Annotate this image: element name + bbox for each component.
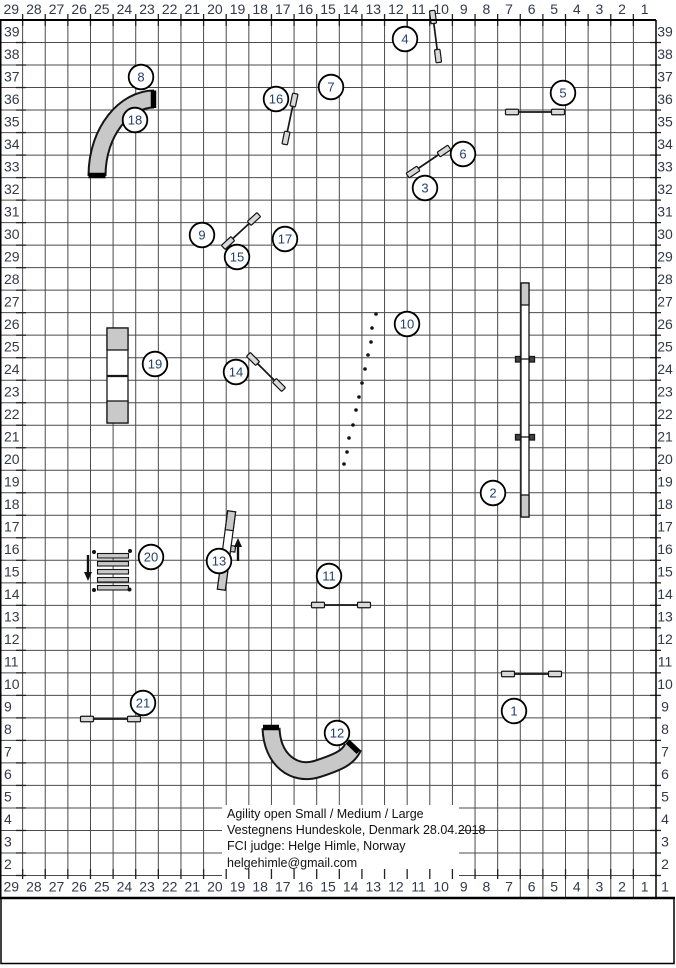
weave-pole [369, 340, 373, 344]
col-label-bottom: 21 [184, 879, 200, 895]
row-label-left: 14 [4, 586, 20, 602]
col-label-top: 5 [550, 1, 558, 17]
row-label-right: 23 [657, 383, 673, 399]
row-label-right: 2 [661, 856, 669, 872]
row-label-left: 34 [4, 136, 20, 152]
col-label-bottom: 7 [505, 879, 513, 895]
row-label-right: 9 [661, 699, 669, 715]
col-label-bottom: 15 [320, 879, 336, 895]
obstacle-number-17: 17 [273, 227, 298, 252]
row-label-right: 33 [657, 158, 673, 174]
jump-wing [128, 716, 141, 722]
row-label-left: 22 [4, 406, 20, 422]
col-label-top: 8 [482, 1, 490, 17]
row-label-right: 11 [658, 654, 673, 670]
number-text: 14 [229, 365, 243, 380]
row-label-left: 33 [4, 158, 20, 174]
course-info-venue-line: Vestegnens Hundeskole, Denmark 28.04.201… [227, 822, 459, 838]
obstacle-number-12: 12 [325, 721, 350, 746]
row-label-left: 16 [4, 541, 20, 557]
long-jump [92, 549, 132, 592]
number-text: 16 [269, 92, 283, 107]
dog-walk-plank [521, 283, 529, 517]
row-label-right: 4 [661, 811, 669, 827]
row-label-right: 22 [657, 406, 673, 422]
obstacle-number-20: 20 [139, 545, 164, 570]
col-label-top: 11 [411, 1, 426, 17]
weave-pole [363, 367, 367, 371]
number-text: 1 [510, 704, 517, 719]
row-label-left: 11 [4, 654, 19, 670]
dog-walk-contact-bottom [521, 495, 529, 517]
col-label-bottom: 11 [411, 879, 426, 895]
row-label-left: 6 [4, 766, 12, 782]
jump-wing [429, 10, 436, 24]
row-label-left: 28 [4, 271, 20, 287]
row-label-left: 27 [4, 293, 20, 309]
weave-pole [370, 326, 374, 330]
long-jump-slat [98, 578, 129, 583]
col-label-bottom: 20 [207, 879, 223, 895]
col-label-bottom: 9 [460, 879, 468, 895]
row-label-right: 27 [657, 293, 673, 309]
number-text: 13 [212, 554, 226, 569]
obstacle-number-9: 9 [190, 223, 215, 248]
row-label-left: 18 [4, 496, 20, 512]
jump-wing [434, 49, 441, 63]
col-label-top: 2 [618, 1, 626, 17]
col-label-bottom: 23 [139, 879, 155, 895]
weave-pole [351, 423, 355, 427]
obstacle-number-8: 8 [129, 65, 154, 90]
col-label-top: 7 [505, 1, 513, 17]
col-label-bottom: 13 [365, 879, 381, 895]
col-label-bottom: 28 [26, 879, 42, 895]
row-label-right: 35 [657, 113, 673, 129]
row-label-right: 13 [657, 609, 673, 625]
col-label-top: 6 [528, 1, 536, 17]
jump-wing [506, 109, 519, 115]
weave-pole [354, 408, 358, 412]
jump-wing [549, 671, 562, 677]
number-text: 5 [559, 86, 566, 101]
row-label-right: 20 [657, 451, 673, 467]
number-text: 12 [330, 726, 344, 741]
col-label-top: 15 [320, 1, 336, 17]
col-label-top: 17 [275, 1, 291, 17]
long-jump-corner-pole [128, 588, 132, 592]
row-label-left: 12 [4, 631, 20, 647]
col-label-top: 3 [596, 1, 604, 17]
weave-pole [374, 312, 378, 316]
row-label-right: 21 [657, 428, 673, 444]
col-label-bottom: 10 [433, 879, 449, 895]
col-label-bottom: 3 [596, 879, 604, 895]
dog-walk-tab [516, 357, 521, 363]
number-text: 11 [322, 569, 336, 584]
agility-course-plan: 2928272625242322212019181716151413121110… [0, 0, 676, 968]
col-label-bottom: 27 [49, 879, 65, 895]
row-label-left: 19 [4, 474, 20, 490]
weave-pole [342, 462, 346, 466]
col-label-top: 27 [49, 1, 65, 17]
row-label-left: 23 [4, 383, 20, 399]
col-label-top: 9 [460, 1, 468, 17]
col-label-bottom: 4 [573, 879, 581, 895]
a-frame [107, 328, 128, 423]
number-text: 7 [327, 80, 334, 95]
col-label-bottom: 12 [388, 879, 404, 895]
row-label-right: 31 [657, 203, 673, 219]
col-label-top: 18 [252, 1, 268, 17]
col-label-bottom: 19 [230, 879, 246, 895]
col-label-bottom: 22 [162, 879, 178, 895]
jump-wing [502, 671, 515, 677]
col-label-top: 26 [71, 1, 87, 17]
row-label-right: 38 [657, 46, 673, 62]
col-label-bottom: 1 [641, 879, 649, 895]
obstacle-number-3: 3 [413, 176, 438, 201]
number-text: 18 [128, 113, 142, 128]
row-label-right: 24 [657, 361, 673, 377]
row-label-left: 24 [4, 361, 20, 377]
jump-wing [358, 602, 371, 608]
course-info-class-line: Agility open Small / Medium / Large [227, 806, 459, 822]
seesaw-contact-top [225, 511, 235, 531]
col-label-top: 23 [139, 1, 155, 17]
a-frame-contact-top [107, 328, 128, 350]
col-label-bottom: 16 [298, 879, 314, 895]
row-label-right: 36 [657, 91, 673, 107]
obstacle-number-10: 10 [395, 312, 420, 337]
weave-pole [357, 395, 361, 399]
obstacle-number-11: 11 [317, 564, 342, 589]
dog-walk-tab [530, 357, 535, 363]
row-label-right: 8 [661, 721, 669, 737]
obstacle-number-15: 15 [225, 245, 250, 270]
row-label-left: 31 [4, 203, 20, 219]
obstacle-number-14: 14 [224, 360, 249, 385]
weave-pole [366, 353, 370, 357]
row-label-left: 39 [4, 23, 20, 39]
long-jump-slat [98, 570, 129, 575]
col-label-bottom: 18 [252, 879, 268, 895]
obstacle-number-4: 4 [393, 27, 418, 52]
col-label-bottom: 24 [117, 879, 133, 895]
row-label-left: 15 [4, 564, 20, 580]
col-label-top: 28 [26, 1, 42, 17]
footer-box [1, 899, 674, 964]
col-label-top: 20 [207, 1, 223, 17]
row-label-right: 34 [657, 136, 673, 152]
course-info-judge-line: FCI judge: Helge Himle, Norway [227, 838, 459, 854]
row-label-right: 14 [657, 586, 673, 602]
long-jump-corner-pole [92, 588, 96, 592]
col-label-top: 13 [365, 1, 381, 17]
col-label-top: 12 [388, 1, 404, 17]
col-label-top: 16 [298, 1, 314, 17]
col-label-bottom: 17 [275, 879, 291, 895]
row-label-left: 3 [4, 834, 12, 850]
long-jump-slat [98, 554, 129, 559]
obstacle-number-1: 1 [502, 699, 527, 724]
row-label-right: 16 [657, 541, 673, 557]
dog-walk-contact-top [521, 283, 529, 305]
col-label-bottom: 8 [482, 879, 490, 895]
row-label-right: 17 [657, 519, 673, 535]
dog-walk-tab [530, 435, 535, 441]
obstacle-number-16: 16 [264, 87, 289, 112]
row-label-left: 35 [4, 113, 20, 129]
row-label-left: 32 [4, 181, 20, 197]
row-label-right: 19 [657, 474, 673, 490]
col-label-bottom: 26 [71, 879, 87, 895]
number-text: 17 [278, 232, 292, 247]
obstacle-number-19: 19 [143, 352, 168, 377]
col-label-top: 19 [230, 1, 246, 17]
number-text: 4 [401, 32, 408, 47]
course-info-email-line: helgehimle@gmail.com [227, 855, 459, 871]
weave-pole [345, 450, 349, 454]
row-label-right: 18 [657, 496, 673, 512]
col-label-bottom: 6 [528, 879, 536, 895]
long-jump-slat [98, 562, 129, 567]
weave-pole [347, 436, 351, 440]
row-label-left: 5 [4, 789, 12, 805]
row-label-right: 15 [657, 564, 673, 580]
row-label-right: 28 [657, 271, 673, 287]
col-label-top: 25 [94, 1, 110, 17]
col-label-top: 4 [573, 1, 581, 17]
row-label-right: 1 [661, 879, 669, 895]
col-label-bottom: 14 [343, 879, 359, 895]
row-label-right: 6 [661, 766, 669, 782]
row-label-left: 2 [4, 856, 12, 872]
row-label-left: 13 [4, 609, 20, 625]
row-label-left: 4 [4, 811, 12, 827]
dog-walk-tab [516, 435, 521, 441]
col-label-top: 22 [162, 1, 178, 17]
course-info-block: Agility open Small / Medium / Large Vest… [227, 806, 459, 871]
obstacle-number-21: 21 [131, 691, 156, 716]
number-text: 6 [459, 147, 466, 162]
row-label-right: 37 [657, 68, 673, 84]
number-text: 21 [136, 696, 150, 711]
jump-wing [81, 716, 94, 722]
number-text: 2 [489, 486, 496, 501]
number-text: 8 [137, 70, 144, 85]
a-frame-contact-bottom [107, 401, 128, 423]
row-label-right: 39 [657, 23, 673, 39]
row-label-left: 26 [4, 316, 20, 332]
row-label-left: 8 [4, 721, 12, 737]
row-label-left: 7 [4, 744, 12, 760]
long-jump-corner-pole [92, 550, 96, 554]
col-label-bottom: 5 [550, 879, 558, 895]
row-label-right: 10 [657, 676, 673, 692]
number-text: 20 [144, 550, 158, 565]
col-label-top: 21 [184, 1, 200, 17]
row-label-left: 29 [4, 248, 20, 264]
long-jump-slat [98, 586, 129, 591]
col-label-top: 14 [343, 1, 359, 17]
col-label-top: 24 [117, 1, 133, 17]
obstacle-number-6: 6 [451, 142, 476, 167]
row-label-left: 17 [4, 519, 20, 535]
row-label-right: 32 [657, 181, 673, 197]
row-label-right: 25 [657, 338, 673, 354]
col-label-bottom: 2 [618, 879, 626, 895]
number-text: 15 [230, 250, 244, 265]
row-label-right: 12 [657, 631, 673, 647]
row-label-right: 30 [657, 226, 673, 242]
number-text: 19 [148, 357, 162, 372]
obstacle-number-5: 5 [551, 81, 576, 106]
jump-wing [312, 602, 325, 608]
row-label-right: 3 [661, 834, 669, 850]
number-text: 3 [421, 181, 428, 196]
col-label-bottom: 29 [4, 879, 20, 895]
col-label-top: 1 [641, 1, 649, 17]
row-label-right: 5 [661, 789, 669, 805]
obstacle-number-2: 2 [481, 481, 506, 506]
row-label-left: 30 [4, 226, 20, 242]
row-label-left: 36 [4, 91, 20, 107]
row-label-left: 38 [4, 46, 20, 62]
number-text: 10 [400, 317, 414, 332]
row-label-left: 21 [4, 428, 20, 444]
row-label-right: 29 [657, 248, 673, 264]
row-label-left: 10 [4, 676, 20, 692]
jump-wing [552, 109, 565, 115]
obstacle-number-18: 18 [123, 108, 148, 133]
row-label-left: 9 [4, 699, 12, 715]
obstacle-number-7: 7 [319, 75, 344, 100]
row-label-left: 37 [4, 68, 20, 84]
obstacle-number-13: 13 [207, 549, 232, 574]
weave-pole [360, 381, 364, 385]
row-label-right: 26 [657, 316, 673, 332]
col-label-top: 29 [4, 1, 20, 17]
col-label-bottom: 25 [94, 879, 110, 895]
row-label-right: 7 [661, 744, 669, 760]
long-jump-corner-pole [128, 549, 132, 553]
row-label-left: 25 [4, 338, 20, 354]
number-text: 9 [198, 228, 205, 243]
row-label-left: 20 [4, 451, 20, 467]
